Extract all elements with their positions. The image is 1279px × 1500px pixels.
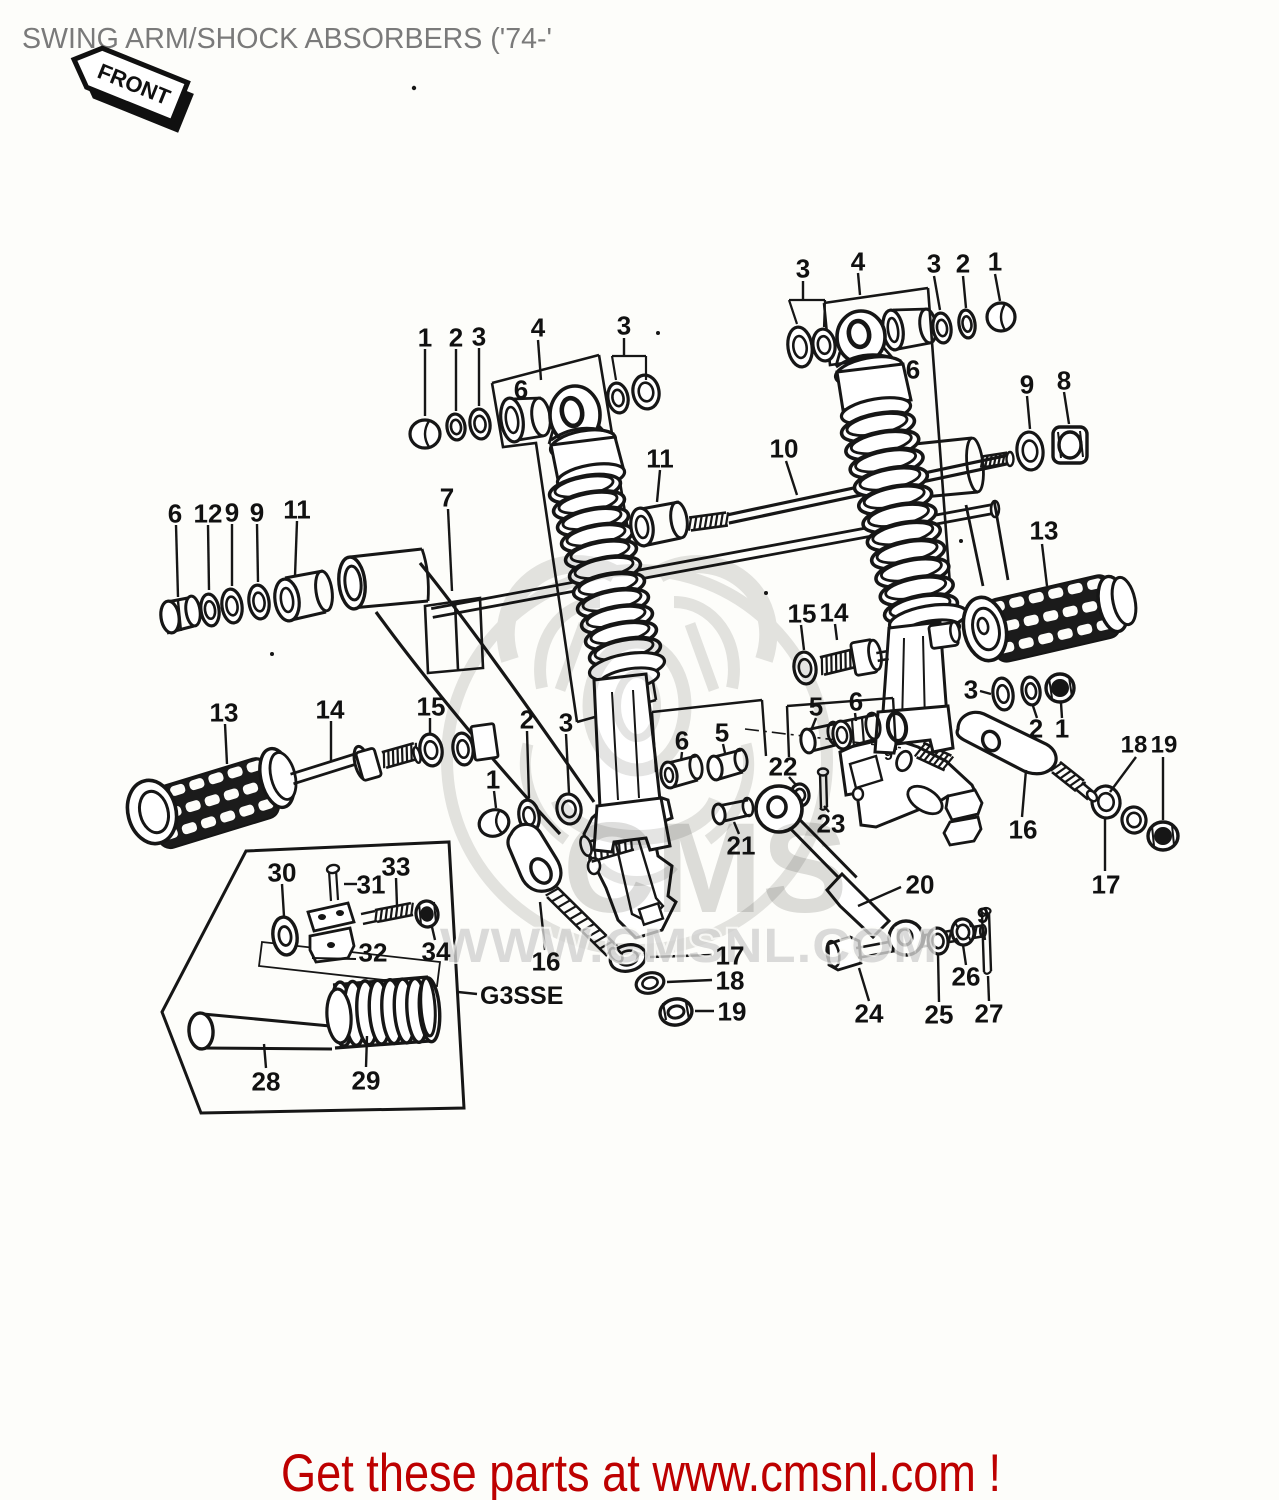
svg-text:12: 12 bbox=[194, 498, 223, 528]
svg-text:26: 26 bbox=[952, 961, 981, 991]
svg-text:27: 27 bbox=[975, 998, 1004, 1028]
svg-text:32: 32 bbox=[359, 937, 388, 967]
svg-text:2: 2 bbox=[1029, 713, 1043, 743]
svg-text:9: 9 bbox=[250, 497, 264, 527]
svg-text:1: 1 bbox=[988, 246, 1002, 276]
svg-text:13: 13 bbox=[210, 697, 239, 727]
svg-text:WWW.CMSNL.COM: WWW.CMSNL.COM bbox=[440, 920, 938, 973]
svg-text:16: 16 bbox=[1009, 814, 1038, 844]
svg-text:15: 15 bbox=[788, 598, 817, 628]
svg-text:22: 22 bbox=[769, 751, 798, 781]
svg-text:6: 6 bbox=[906, 354, 920, 384]
svg-text:1: 1 bbox=[418, 322, 432, 352]
svg-text:16: 16 bbox=[532, 946, 561, 976]
svg-text:21: 21 bbox=[727, 830, 756, 860]
svg-text:G3SSE: G3SSE bbox=[480, 982, 563, 1010]
svg-text:19: 19 bbox=[1151, 732, 1178, 759]
svg-text:18: 18 bbox=[1121, 732, 1148, 759]
svg-text:15: 15 bbox=[417, 691, 446, 721]
svg-text:2: 2 bbox=[956, 248, 970, 278]
svg-text:6: 6 bbox=[849, 686, 863, 716]
svg-text:1: 1 bbox=[1055, 713, 1069, 743]
svg-text:14: 14 bbox=[820, 597, 849, 627]
svg-text:14: 14 bbox=[316, 694, 345, 724]
svg-text:4: 4 bbox=[851, 246, 866, 276]
svg-text:6: 6 bbox=[514, 374, 528, 404]
svg-text:29: 29 bbox=[352, 1065, 381, 1095]
svg-text:28: 28 bbox=[252, 1066, 281, 1096]
svg-text:11: 11 bbox=[283, 494, 311, 524]
svg-text:8: 8 bbox=[1057, 365, 1071, 395]
svg-text:3: 3 bbox=[796, 253, 810, 283]
svg-text:11: 11 bbox=[646, 443, 674, 473]
svg-text:18: 18 bbox=[716, 965, 745, 995]
svg-text:3: 3 bbox=[964, 674, 978, 704]
svg-text:4: 4 bbox=[531, 312, 546, 342]
svg-text:3: 3 bbox=[617, 310, 631, 340]
svg-text:5: 5 bbox=[715, 717, 729, 747]
svg-text:3: 3 bbox=[472, 321, 486, 351]
svg-text:13: 13 bbox=[1030, 515, 1059, 545]
svg-text:34: 34 bbox=[422, 936, 451, 966]
svg-text:5: 5 bbox=[809, 691, 823, 721]
svg-text:6: 6 bbox=[675, 725, 689, 755]
svg-text:23: 23 bbox=[817, 808, 846, 838]
svg-text:3: 3 bbox=[559, 707, 573, 737]
svg-text:9: 9 bbox=[225, 497, 239, 527]
svg-text:17: 17 bbox=[1092, 869, 1121, 899]
svg-text:24: 24 bbox=[855, 998, 884, 1028]
svg-text:3: 3 bbox=[927, 248, 941, 278]
svg-text:20: 20 bbox=[906, 869, 935, 899]
svg-text:33: 33 bbox=[382, 851, 411, 881]
svg-text:7: 7 bbox=[440, 482, 454, 512]
svg-text:2: 2 bbox=[449, 322, 463, 352]
svg-text:6: 6 bbox=[168, 498, 182, 528]
svg-text:10: 10 bbox=[770, 433, 799, 463]
svg-text:Get these parts at www.cmsnl.c: Get these parts at www.cmsnl.com ! bbox=[281, 1444, 1001, 1500]
svg-text:9: 9 bbox=[1020, 369, 1034, 399]
svg-text:1: 1 bbox=[486, 764, 500, 794]
svg-text:9: 9 bbox=[977, 903, 989, 928]
svg-text:19: 19 bbox=[718, 996, 747, 1026]
svg-text:2: 2 bbox=[520, 704, 534, 734]
svg-text:30: 30 bbox=[268, 857, 297, 887]
svg-text:25: 25 bbox=[925, 999, 954, 1029]
svg-text:CMS: CMS bbox=[563, 797, 847, 940]
